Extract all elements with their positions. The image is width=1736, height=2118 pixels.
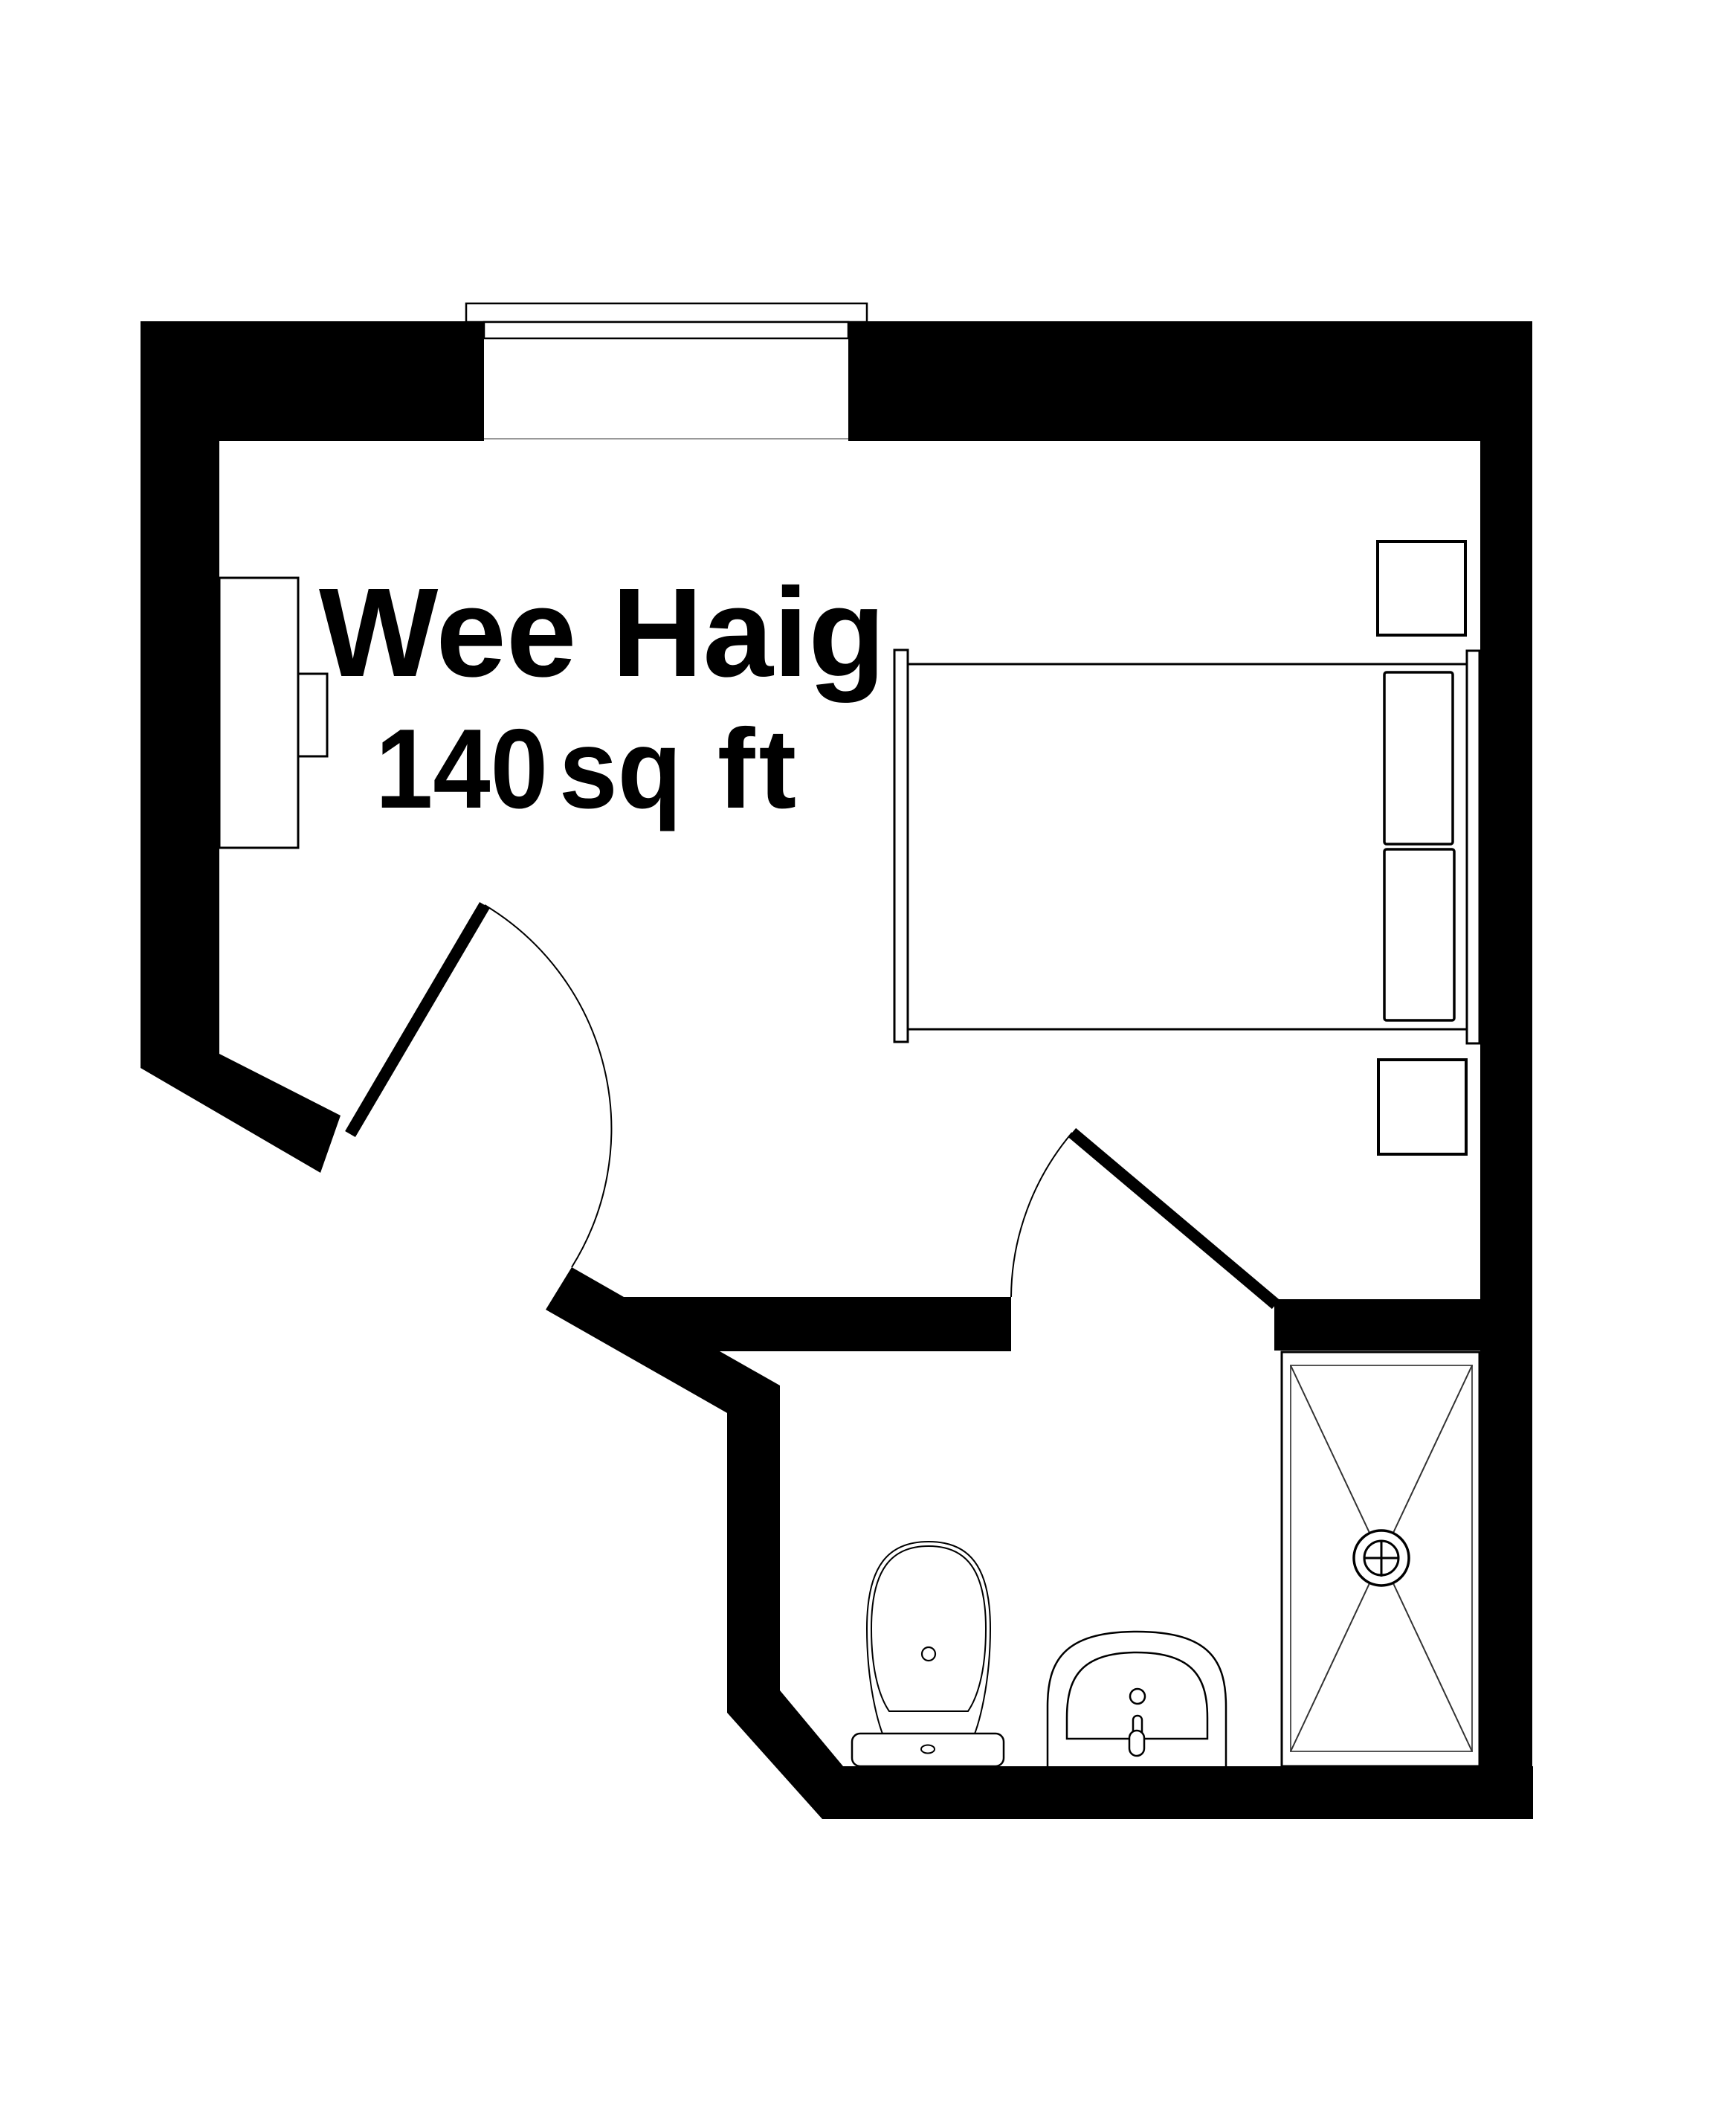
svg-text:140: 140: [375, 705, 548, 831]
svg-text:ft: ft: [717, 706, 800, 832]
svg-text:sq: sq: [559, 706, 682, 832]
svg-text:Wee Haig: Wee Haig: [319, 562, 885, 704]
